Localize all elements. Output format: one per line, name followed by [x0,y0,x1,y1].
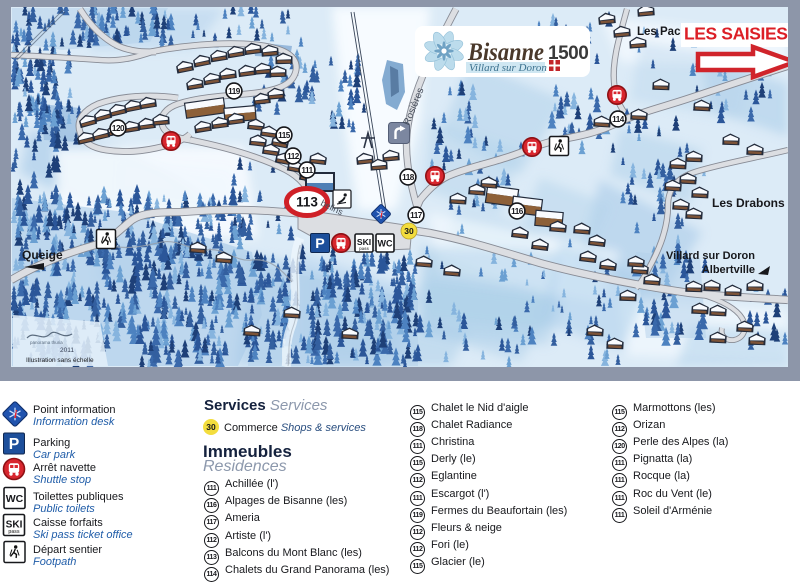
svg-text:WC: WC [378,238,393,248]
svg-text:Albertville: Albertville [702,264,755,276]
svg-text:P: P [9,436,20,453]
svg-text:114: 114 [612,115,625,124]
svg-text:2011: 2011 [60,347,74,354]
svg-text:WC: WC [6,493,24,505]
svg-text:pass: pass [359,246,369,251]
svg-text:111: 111 [301,166,313,175]
svg-text:118: 118 [402,173,415,182]
svg-text:117: 117 [410,211,423,220]
svg-text:pass: pass [8,529,20,535]
svg-text:P: P [315,236,325,252]
svg-text:Villard sur Doron: Villard sur Doron [666,250,755,262]
svg-text:30: 30 [404,226,414,236]
svg-text:LES SAISIES: LES SAISIES [684,24,788,44]
svg-text:119: 119 [228,87,241,96]
svg-text:116: 116 [511,207,524,216]
svg-text:112: 112 [287,152,300,161]
svg-text:Queige: Queige [22,248,63,262]
svg-text:113: 113 [296,195,318,210]
svg-text:Illustration sans échelle: Illustration sans échelle [26,357,94,364]
svg-text:30: 30 [206,422,216,432]
svg-text:120: 120 [112,124,125,133]
svg-text:panorama thuria: panorama thuria [30,340,63,345]
svg-text:Villard sur Doron: Villard sur Doron [469,62,547,74]
svg-text:Les Drabons: Les Drabons [712,196,785,210]
svg-text:115: 115 [278,131,291,140]
